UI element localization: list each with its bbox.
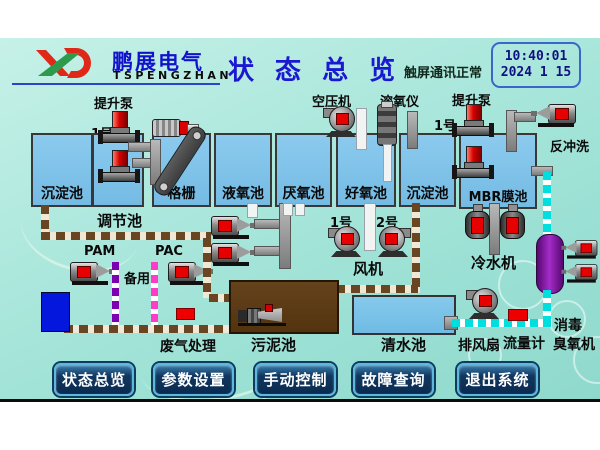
dosing-valve-indicator (176, 308, 195, 320)
pipe-brown (412, 203, 420, 293)
hmi-screen: 鹏展电气 TSPENGZHAN 状 态 总 览 触屏通讯正常 10:40:01 … (0, 38, 600, 402)
label-flow-meter: 流量计 (503, 333, 545, 353)
pam-dosing-pump-icon (70, 260, 116, 286)
pipe-brown (336, 285, 418, 293)
nav-status-overview-button[interactable]: 状态总览 (54, 363, 134, 396)
label-waste-gas: 废气处理 (160, 336, 216, 356)
brand-underline (12, 83, 220, 85)
label-standby: 备用 (124, 268, 150, 287)
pipe-segment (295, 203, 305, 216)
backwash-pump-icon (530, 102, 576, 128)
label-sludge-tank: 污泥池 (251, 334, 296, 355)
pipe-brown (41, 205, 49, 234)
tank-liquid-oxygen: 液氧池 (214, 133, 272, 207)
label-chiller: 冷水机 (471, 252, 516, 273)
lift-pump-left-2-icon (101, 150, 137, 186)
pipe-brown (209, 294, 231, 302)
tank-anaerobic: 厌氧池 (275, 133, 332, 207)
tank-label: 厌氧池 (277, 183, 330, 203)
exhaust-fan-icon (466, 288, 502, 319)
nav-exit-system-button[interactable]: 退出系统 (457, 363, 538, 396)
ozone-pump-2-icon (561, 263, 598, 284)
do-meter-icon (377, 104, 397, 146)
tank-label: 好氧池 (338, 183, 394, 203)
pipe-magenta (151, 262, 158, 328)
pipe-brown (41, 232, 211, 240)
tank-sedimentation-1: 沉淀池 (31, 133, 93, 207)
lift-pump-right-1-icon (455, 104, 491, 140)
blower-1-icon (328, 226, 364, 257)
chiller-pump-1-icon (464, 204, 490, 240)
label-clear-water-tank: 清水池 (381, 334, 426, 355)
flow-meter-icon (508, 309, 528, 321)
nav-parameter-settings-button[interactable]: 参数设置 (153, 363, 234, 396)
comm-status: 触屏通讯正常 (404, 62, 482, 81)
pipe-cyan (452, 319, 552, 327)
sludge-pump-2-icon (211, 241, 257, 267)
label-pac: PAC (155, 244, 183, 259)
brand-name-en: TSPENGZHAN (113, 69, 232, 82)
blower-2-icon (375, 226, 411, 257)
pipe-purple (112, 262, 119, 328)
label-pam: PAM (84, 244, 115, 259)
sludge-discharge-pump-icon (238, 304, 288, 326)
tank-sludge (229, 280, 339, 334)
label-ozone: 臭氧机 (553, 334, 595, 354)
nav-manual-control-button[interactable]: 手动控制 (255, 363, 336, 396)
lift-pump-right-2-icon (455, 146, 491, 182)
tank-label: 沉淀池 (33, 183, 91, 203)
pipe-brown (64, 325, 231, 333)
pipe-segment (407, 111, 418, 149)
label-exhaust-fan: 排风扇 (458, 335, 500, 355)
pipe-brown (203, 238, 211, 298)
page-title: 状 态 总 览 (228, 50, 401, 87)
chiller-pump-2-icon (499, 204, 525, 240)
pipe-segment (356, 108, 367, 150)
tank-label: 沉淀池 (401, 183, 454, 203)
do-meter-probe (383, 144, 392, 182)
tank-clear-water (352, 295, 456, 335)
clock-date: 2024 1 15 (501, 65, 571, 81)
pipe-cyan (543, 172, 551, 234)
label-regulation-tank: 调节池 (97, 210, 142, 231)
company-logo (30, 42, 108, 84)
pipe-segment (283, 203, 293, 216)
label-lift-pump-left: 提升泵 (94, 93, 133, 112)
dosing-tank-icon (41, 292, 70, 332)
nav-fault-query-button[interactable]: 故障查询 (353, 363, 434, 396)
label-disinfect: 消毒 (554, 315, 582, 335)
label-backwash: 反冲洗 (550, 136, 589, 155)
clock-display: 10:40:01 2024 1 15 (491, 42, 581, 88)
tank-label: 液氧池 (216, 183, 270, 203)
ozone-pump-1-icon (561, 239, 598, 260)
pipe-segment (247, 203, 258, 218)
clock-time: 10:40:01 (505, 49, 568, 65)
label-fan: 风机 (353, 258, 383, 279)
air-compressor-icon (323, 106, 359, 137)
pipe-cyan (543, 290, 551, 322)
